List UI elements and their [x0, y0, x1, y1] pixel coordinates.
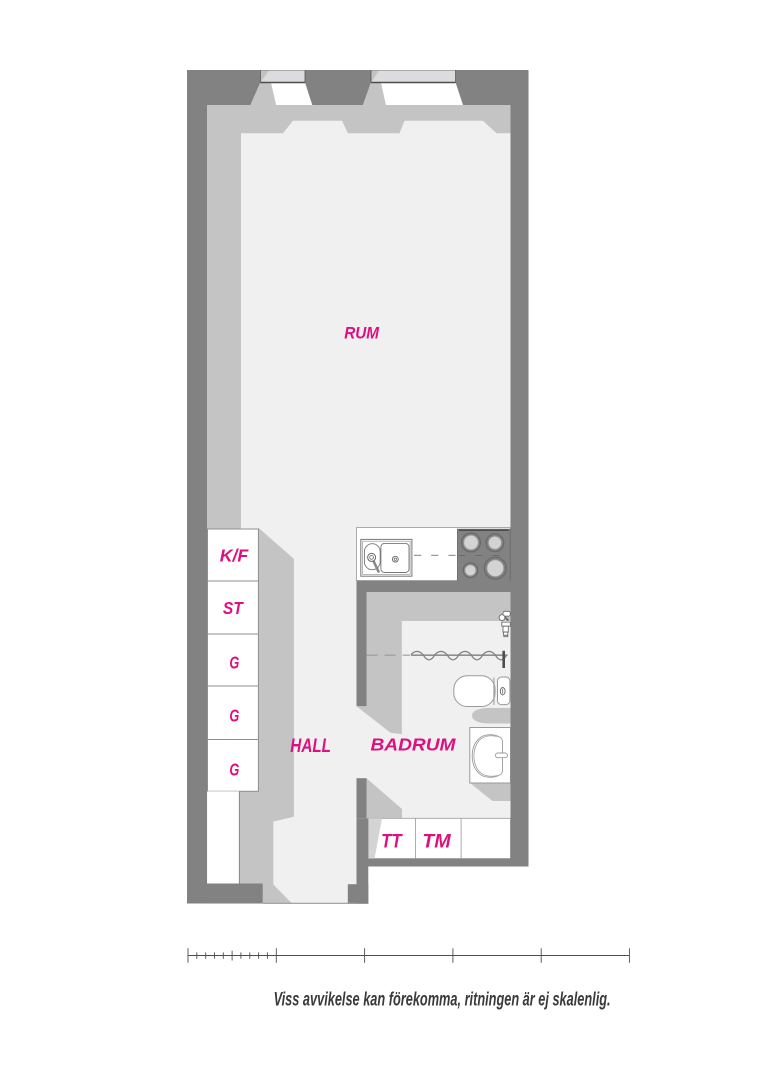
svg-text:G: G: [229, 706, 239, 726]
svg-text:Viss avvikelse kan förekomma,: Viss avvikelse kan förekomma, ritningen …: [274, 990, 611, 1011]
svg-text:ST: ST: [223, 598, 245, 618]
svg-text:TT: TT: [381, 832, 403, 853]
svg-text:BADRUM: BADRUM: [371, 735, 457, 755]
svg-text:HALL: HALL: [290, 736, 331, 757]
svg-text:G: G: [229, 759, 239, 779]
svg-text:RUM: RUM: [344, 324, 379, 342]
svg-text:G: G: [229, 653, 239, 673]
svg-text:TM: TM: [422, 832, 452, 853]
svg-text:K/F: K/F: [220, 545, 250, 565]
